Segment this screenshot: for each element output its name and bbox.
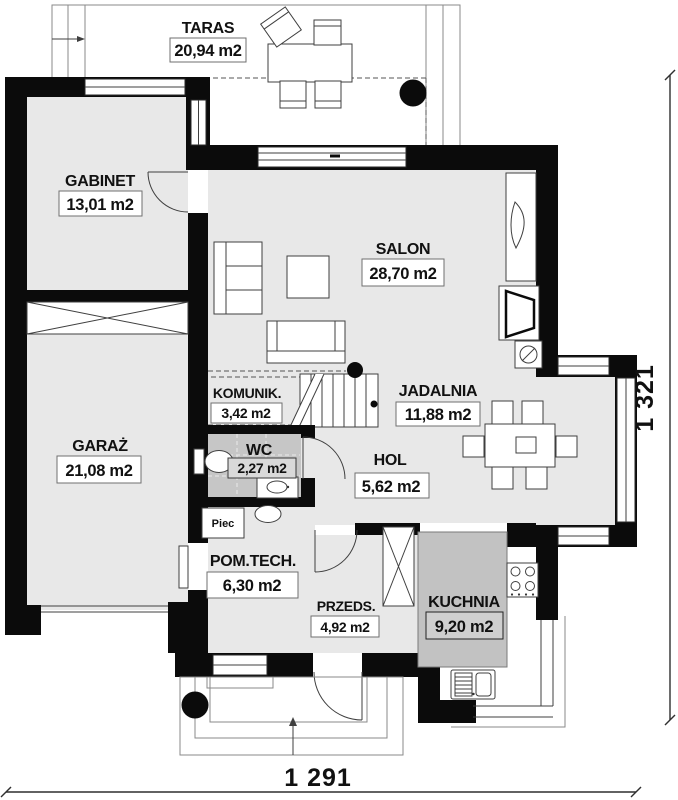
dimension-width-label: 1 291 xyxy=(284,764,352,792)
arrow-icon xyxy=(77,36,85,42)
column xyxy=(347,362,363,378)
svg-text:GABINET: GABINET xyxy=(65,173,135,190)
room-label-taras: TARAS 20,94 m2 xyxy=(170,20,246,62)
svg-text:KOMUNIK.: KOMUNIK. xyxy=(213,385,281,401)
washbasin-icon xyxy=(257,477,298,498)
svg-text:3,42 m2: 3,42 m2 xyxy=(221,405,271,421)
svg-text:PRZEDS.: PRZEDS. xyxy=(317,598,376,614)
room-label-gabinet: GABINET 13,01 m2 xyxy=(59,173,142,216)
dimension-bottom: 1 291 xyxy=(1,764,641,797)
porch-steps xyxy=(180,677,403,755)
furnace-box: Piec xyxy=(202,508,244,538)
svg-text:KUCHNIA: KUCHNIA xyxy=(428,594,500,611)
tv-shelf xyxy=(506,173,536,281)
terrace-door-window xyxy=(258,147,406,167)
room-label-przeds: PRZEDS. 4,92 m2 xyxy=(311,598,379,637)
svg-text:JADALNIA: JADALNIA xyxy=(399,383,478,400)
terrace-table-set xyxy=(261,7,352,108)
furnace-label: Piec xyxy=(212,518,235,530)
fireplace-icon xyxy=(499,286,539,340)
svg-text:11,88 m2: 11,88 m2 xyxy=(405,406,472,424)
window xyxy=(85,79,185,95)
entrance-door xyxy=(313,653,362,720)
coffee-table xyxy=(287,256,329,298)
sofa-horizontal xyxy=(267,321,345,363)
dimension-height-label: 1 321 xyxy=(631,364,659,432)
wardrobe-icon xyxy=(383,527,414,606)
svg-text:21,08 m2: 21,08 m2 xyxy=(65,462,132,480)
svg-text:HOL: HOL xyxy=(374,452,407,469)
entry-window xyxy=(207,655,273,688)
dimension-right: 1 321 xyxy=(631,70,675,725)
flue-icon xyxy=(515,341,542,368)
svg-text:4,92 m2: 4,92 m2 xyxy=(320,619,370,635)
svg-text:13,01 m2: 13,01 m2 xyxy=(66,196,133,214)
svg-text:6,30 m2: 6,30 m2 xyxy=(223,577,282,595)
column xyxy=(400,80,427,107)
svg-text:2,27 m2: 2,27 m2 xyxy=(237,460,287,476)
svg-text:GARAŻ: GARAŻ xyxy=(72,437,128,455)
column xyxy=(182,692,209,719)
kitchen-sink-icon xyxy=(451,670,495,699)
svg-text:28,70 m2: 28,70 m2 xyxy=(369,265,436,283)
svg-text:SALON: SALON xyxy=(376,241,431,258)
floor-plan: Piec xyxy=(0,0,678,800)
window xyxy=(558,357,609,375)
svg-text:5,62 m2: 5,62 m2 xyxy=(362,478,421,496)
room-label-pomtech: POM.TECH. 6,30 m2 xyxy=(207,553,298,598)
svg-text:20,94 m2: 20,94 m2 xyxy=(174,42,241,60)
room-label-jadalnia: JADALNIA 11,88 m2 xyxy=(396,383,480,426)
svg-text:9,20 m2: 9,20 m2 xyxy=(435,618,494,636)
svg-text:POM.TECH.: POM.TECH. xyxy=(210,553,296,570)
window xyxy=(191,100,206,145)
room-label-kuchnia: KUCHNIA 9,20 m2 xyxy=(426,594,503,639)
stove-icon xyxy=(507,563,538,597)
garage-structure-box xyxy=(27,302,188,334)
svg-text:TARAS: TARAS xyxy=(182,20,235,37)
toilet-icon xyxy=(194,449,233,474)
window xyxy=(558,527,609,545)
room-label-komunik: KOMUNIK. 3,42 m2 xyxy=(211,385,282,423)
floor-plan-drawing: Piec xyxy=(0,0,678,800)
sofa-vertical xyxy=(214,242,262,314)
svg-text:WC: WC xyxy=(246,442,273,459)
water-heater-icon xyxy=(255,506,281,523)
garage-door-leaf xyxy=(179,546,188,588)
stair-newel xyxy=(371,401,378,408)
